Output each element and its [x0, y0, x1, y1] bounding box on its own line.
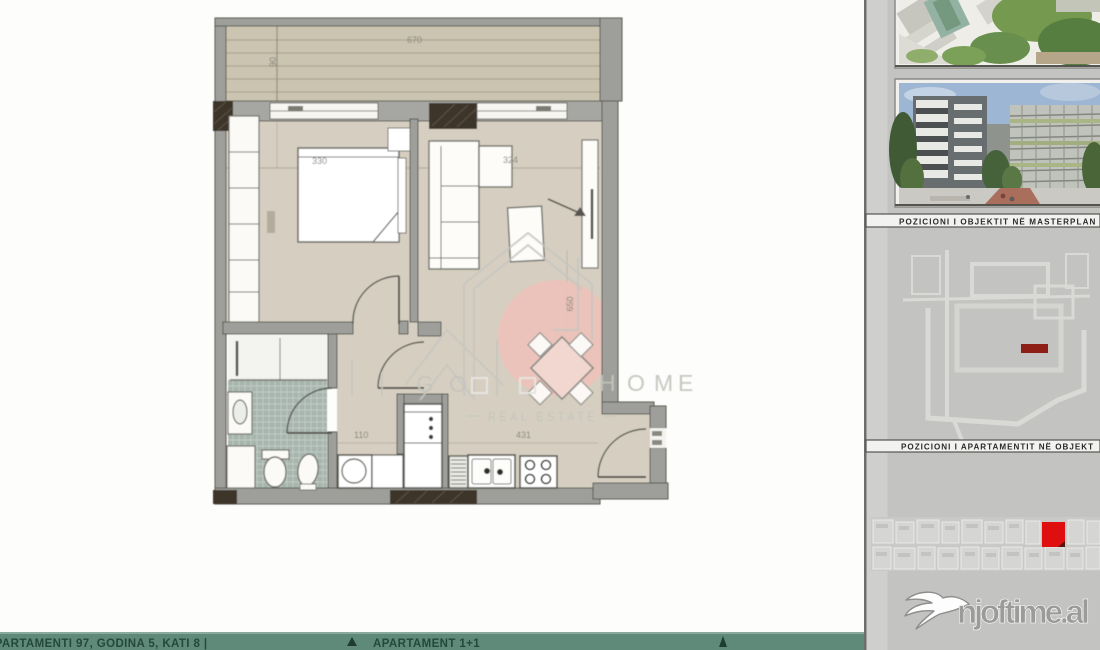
svg-text:650: 650	[565, 296, 575, 311]
svg-text:M: M	[654, 370, 673, 396]
svg-text:O: O	[627, 370, 645, 396]
svg-text:POZICIONI I APARTAMENTIT NË OB: POZICIONI I APARTAMENTIT NË OBJEKT	[901, 443, 1094, 452]
svg-text:REAL ESTATE: REAL ESTATE	[488, 410, 598, 424]
svg-text:POZICIONI I OBJEKTIT NË MASTER: POZICIONI I OBJEKTIT NË MASTERPLAN	[899, 218, 1097, 227]
svg-text:110: 110	[354, 430, 368, 440]
svg-text:njoftime.al: njoftime.al	[957, 593, 1089, 630]
svg-text:431: 431	[516, 430, 531, 440]
svg-text:H: H	[599, 370, 616, 396]
svg-text:670: 670	[407, 35, 422, 45]
svg-text:O: O	[449, 371, 467, 397]
svg-text:330: 330	[312, 156, 327, 166]
svg-text:APARTAMENTI 97, GODINA 5, KATI: APARTAMENTI 97, GODINA 5, KATI 8 |	[0, 638, 208, 650]
svg-text:324: 324	[503, 155, 518, 165]
svg-text:90: 90	[268, 57, 278, 67]
svg-text:E: E	[678, 370, 693, 396]
svg-text:APARTAMENT 1+1: APARTAMENT 1+1	[373, 638, 480, 650]
svg-text:G: G	[416, 371, 434, 397]
